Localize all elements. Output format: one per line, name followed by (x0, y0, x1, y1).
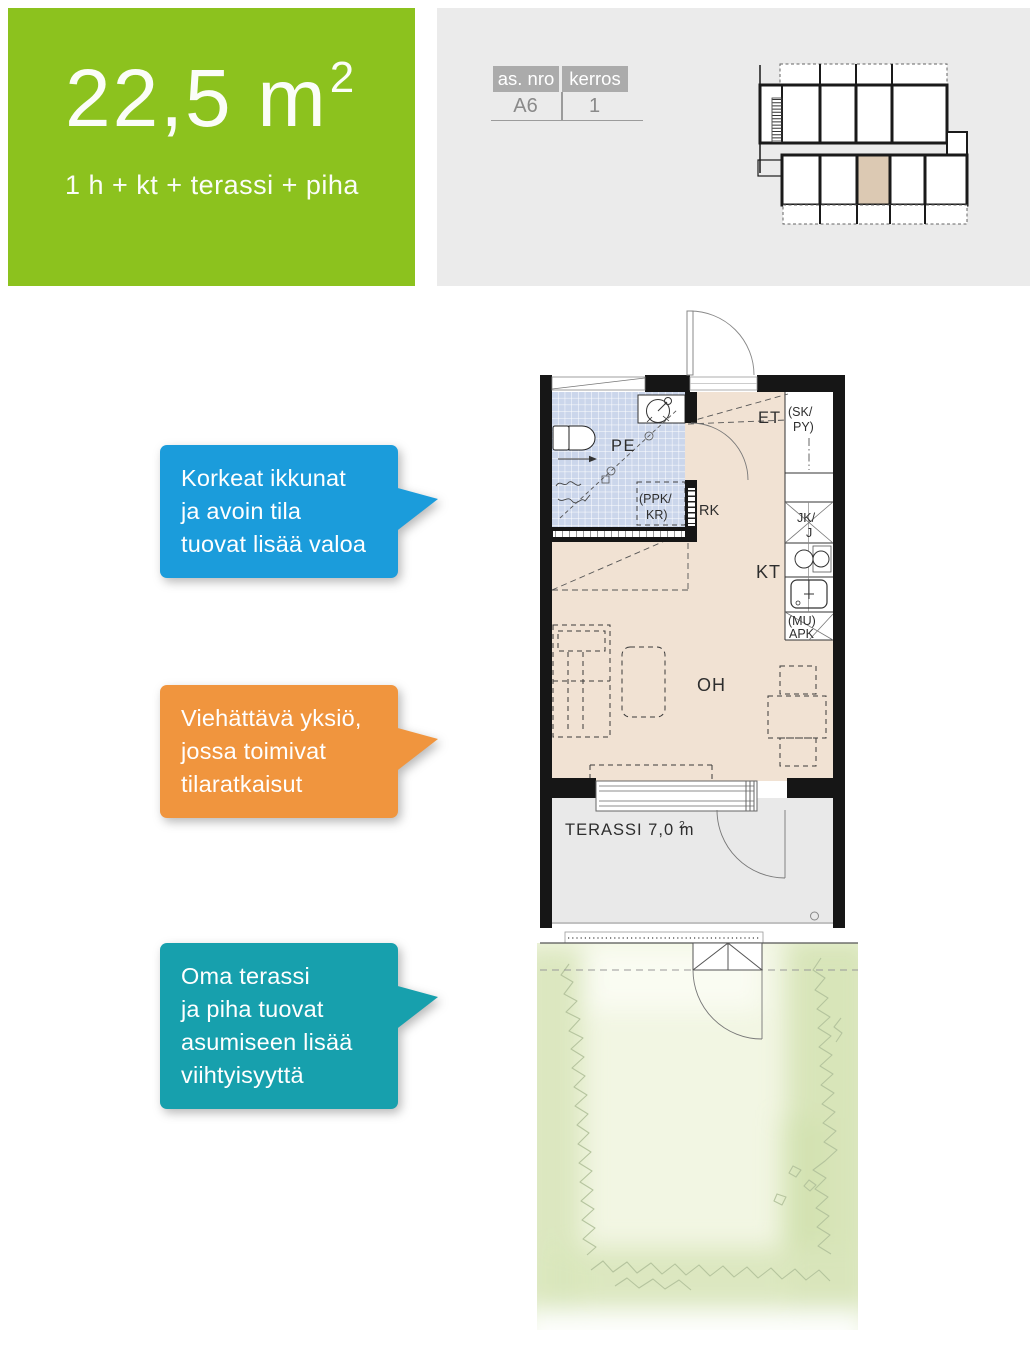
callout-pointer (394, 985, 438, 1031)
dishwasher-label-2: APK (789, 627, 815, 641)
closet-label-2: PY) (793, 420, 814, 434)
callout-windows: Korkeat ikkunat ja avoin tila tuovat lis… (160, 445, 445, 578)
terrace-window (596, 781, 757, 811)
floor-value: 1 (560, 92, 629, 120)
callout-line: ja piha tuovat (181, 993, 382, 1026)
unit-info-table: as. nro kerros A6 1 (493, 66, 645, 121)
yard-fence (540, 932, 858, 943)
callout-line: ja avoin tila (181, 495, 382, 528)
callout-line: Oma terassi (181, 960, 382, 993)
toilet (553, 426, 595, 450)
bathroom: PE (PPK/ KR) (552, 392, 685, 527)
callout-line: viihtyisyyttä (181, 1059, 382, 1092)
callout-terrace-bubble: Oma terassi ja piha tuovat asumiseen lis… (160, 943, 398, 1109)
fridge-label-2: J (806, 526, 812, 540)
washer-label-1: (PPK/ (639, 492, 672, 506)
info-panel: as. nro kerros A6 1 (437, 8, 1030, 286)
kitchenette: (SK/ PY) JK/ J (MU) APK (785, 392, 833, 641)
callout-terrace: Oma terassi ja piha tuovat asumiseen lis… (160, 943, 445, 1109)
high-window (552, 377, 645, 390)
electrical-cabinet-label: RK (699, 503, 719, 519)
highlighted-unit (857, 157, 890, 204)
callout-line: tilaratkaisut (181, 768, 382, 801)
callout-studio-bubble: Viehättävä yksiö, jossa toimivat tilarat… (160, 685, 398, 818)
fridge-label-1: JK/ (797, 511, 816, 525)
closet-label-1: (SK/ (788, 405, 813, 419)
entry-label: ET (758, 409, 781, 427)
floor-plan: TERASSI 7,0 m 2 (525, 308, 865, 1348)
callout-studio: Viehättävä yksiö, jossa toimivat tilarat… (160, 685, 445, 818)
callout-pointer (394, 727, 438, 773)
callout-line: Viehättävä yksiö, (181, 702, 382, 735)
terrace: TERASSI 7,0 m 2 (552, 798, 833, 924)
callout-pointer (394, 487, 438, 533)
apartment-summary-panel: 22,5 m2 1 h + kt + terassi + piha (8, 8, 415, 286)
area-superscript: 2 (330, 53, 356, 102)
callout-line: tuovat lisää valoa (181, 528, 382, 561)
area-value: 22,5 m (65, 53, 328, 144)
kitchen-label: KT (756, 562, 781, 582)
entry-door-swing-arc (690, 311, 754, 375)
terrace-label: TERASSI 7,0 m (565, 821, 694, 839)
table-divider (561, 92, 563, 120)
building-locator-diagram (750, 52, 970, 227)
callout-windows-bubble: Korkeat ikkunat ja avoin tila tuovat lis… (160, 445, 398, 578)
living-room-label: OH (697, 675, 726, 695)
unit-number-value: A6 (491, 92, 560, 120)
terrace-label-superscript: 2 (679, 819, 685, 831)
garden (525, 938, 865, 1348)
apartment-area: 22,5 m2 (65, 58, 415, 140)
dishwasher-label-1: (MU) (788, 614, 816, 628)
washer-label-2: KR) (646, 508, 668, 522)
callout-line: asumiseen lisää (181, 1026, 382, 1059)
table-header-floor: kerros (562, 66, 628, 92)
callout-line: jossa toimivat (181, 735, 382, 768)
entry-door (687, 311, 757, 390)
room-configuration: 1 h + kt + terassi + piha (65, 170, 415, 201)
bathroom-label: PE (611, 437, 636, 455)
callout-line: Korkeat ikkunat (181, 462, 382, 495)
table-header-unit-number: as. nro (493, 66, 559, 92)
